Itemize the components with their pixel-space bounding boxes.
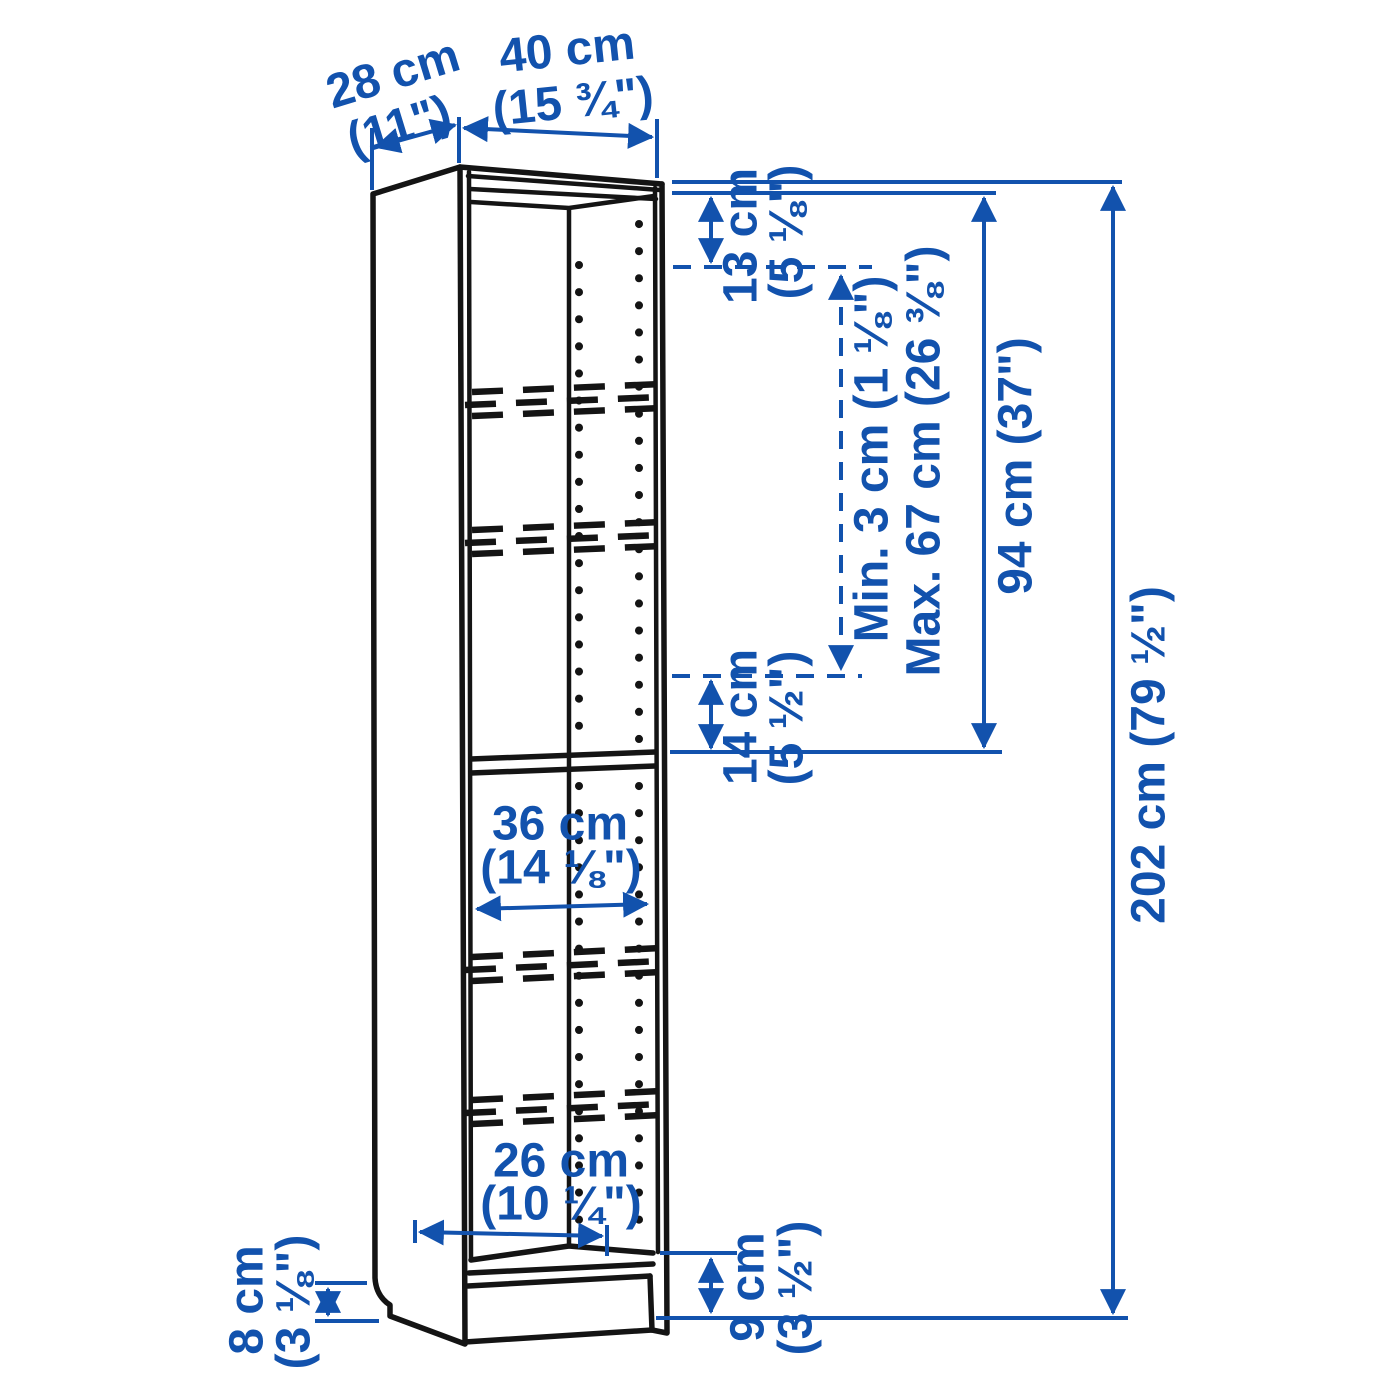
label-plinth-front-cm: 9 cm — [722, 1232, 775, 1341]
label-plinth-front-in: (3 ½") — [770, 1221, 823, 1356]
fixed-shelf-top — [471, 752, 655, 759]
right-panel-outer-edge — [662, 184, 667, 1332]
dim-mid-gap-14cm: 14 cm (5 ½") — [670, 649, 1002, 785]
shelf-dashed — [465, 397, 661, 405]
dim-upper-section-94cm: 94 cm (37") — [984, 198, 1043, 747]
label-plinth-side-in: (3 ⅛") — [268, 1235, 321, 1370]
plinth-bottom-edge — [465, 1330, 667, 1342]
shelf-dashed — [472, 546, 661, 554]
shelf-dashed — [472, 384, 661, 392]
dim-plinth-side-8cm: 8 cm (3 ⅛") — [221, 1235, 380, 1370]
dim-shelf-spacing-minmax: Min. 3 cm (1 ⅛") Max. 67 cm (26 ⅜") — [841, 246, 951, 677]
label-plinth-side-cm: 8 cm — [221, 1245, 274, 1354]
dim-total-height-202cm: 202 cm (79 ½") — [1113, 187, 1176, 1313]
label-top-gap-in: (5 ⅛") — [761, 165, 814, 300]
arrow-line — [420, 1232, 602, 1236]
shelf-dashed — [472, 948, 661, 957]
shelf-dashed — [472, 408, 661, 416]
interior-top-back-edge — [471, 196, 654, 208]
label-total-height: 202 cm (79 ½") — [1123, 586, 1176, 924]
label-shelf-spacing-min: Min. 3 cm (1 ⅛") — [846, 276, 899, 643]
shelf-dashed — [472, 972, 661, 981]
label-bottom-inner-in: (10 ¼") — [480, 1178, 641, 1231]
fixed-shelf-bottom — [471, 766, 655, 773]
dim-bottom-inner-26cm: 26 cm (10 ¼") — [415, 1135, 642, 1257]
left-panel-outline — [373, 167, 465, 1344]
shelf-dashed — [472, 1091, 661, 1100]
shelf-dashed — [465, 535, 661, 543]
bottom-shelf-front-edge — [469, 1264, 653, 1273]
shelf-dashed — [472, 522, 661, 530]
shelf-dashed — [465, 961, 661, 970]
dim-width-40cm: 40 cm (15 ¾") — [464, 17, 657, 178]
dim-inner-width-36cm: 36 cm (14 ⅛") — [477, 798, 647, 910]
dimension-annotations: 28 cm (11") 40 cm (15 ¾") 13 cm (5 ⅛") M… — [221, 17, 1176, 1370]
front-left-inner-edge — [469, 172, 471, 1258]
shelf-dashed — [465, 1104, 661, 1113]
arrow-line — [477, 904, 647, 909]
plinth-top-edge — [468, 1276, 650, 1286]
label-upper-section: 94 cm (37") — [990, 337, 1043, 595]
label-inner-width-in: (14 ⅛") — [480, 842, 641, 895]
dim-depth-28cm: 28 cm (11") — [320, 29, 466, 190]
label-shelf-spacing-max: Max. 67 cm (26 ⅜") — [898, 246, 951, 677]
dimension-diagram: 28 cm (11") 40 cm (15 ¾") 13 cm (5 ⅛") M… — [0, 0, 1400, 1400]
bottom-shelf-back-edge — [471, 1246, 653, 1260]
label-mid-gap-in: (5 ½") — [761, 651, 814, 786]
shelf-dashed — [472, 1115, 661, 1124]
dim-plinth-front-9cm: 9 cm (3 ½") — [656, 1221, 1128, 1356]
plinth-right-edge — [650, 1276, 652, 1330]
